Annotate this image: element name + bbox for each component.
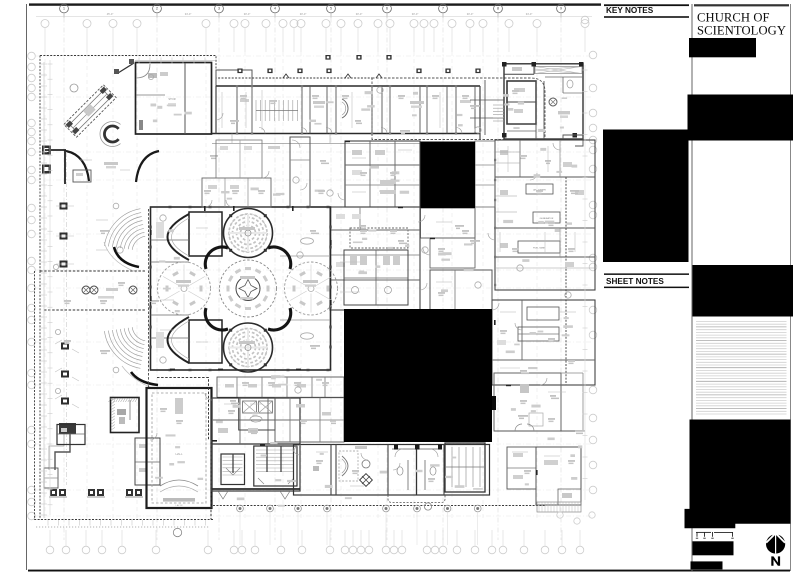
- svg-text:30'-0": 30'-0": [300, 12, 307, 16]
- svg-text:45'-0": 45'-0": [107, 12, 114, 16]
- svg-text:SCIENTOLOGY: SCIENTOLOGY: [697, 24, 786, 38]
- svg-text:LAY-IN: LAY-IN: [176, 504, 183, 507]
- svg-text:CHURCH OF: CHURCH OF: [697, 11, 770, 25]
- svg-text:34'-0": 34'-0": [185, 12, 192, 16]
- svg-text:KEY NOTES: KEY NOTES: [606, 6, 654, 15]
- svg-text:34'-0": 34'-0": [526, 12, 533, 16]
- svg-text:STOR: STOR: [168, 97, 175, 101]
- svg-text:30'-0": 30'-0": [412, 12, 419, 16]
- svg-text:FUEL TANK: FUEL TANK: [533, 247, 545, 250]
- svg-text:GENERATOR: GENERATOR: [540, 217, 554, 220]
- svg-text:30'-0": 30'-0": [244, 12, 251, 16]
- svg-text:30'-0": 30'-0": [356, 12, 363, 16]
- svg-text:HALL: HALL: [176, 452, 183, 456]
- svg-text:SHEET NOTES: SHEET NOTES: [606, 277, 664, 286]
- svg-text:30'-0": 30'-0": [467, 12, 474, 16]
